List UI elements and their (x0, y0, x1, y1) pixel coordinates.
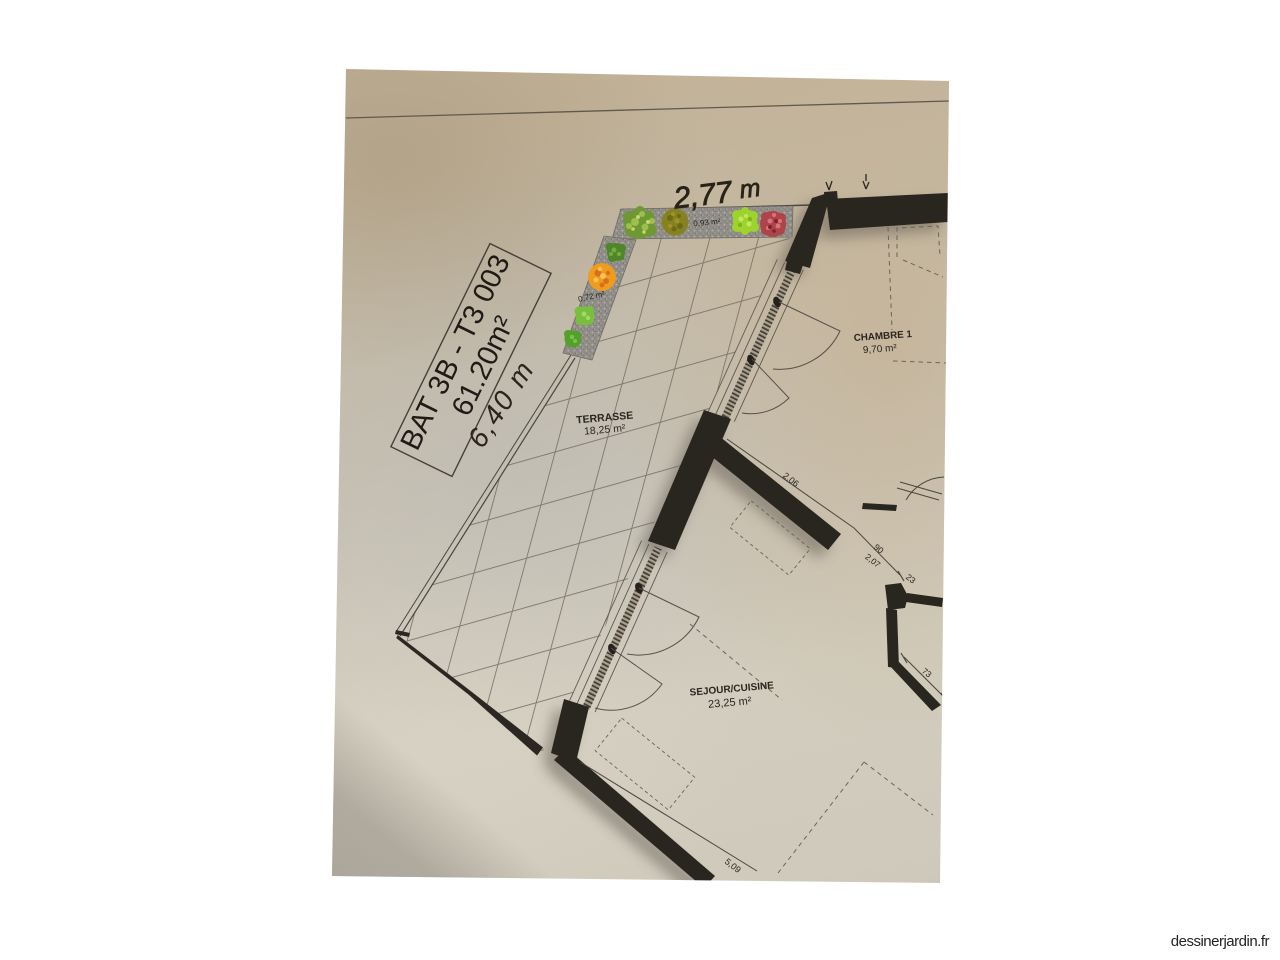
svg-text:m: m (738, 174, 762, 204)
svg-text:90: 90 (872, 542, 886, 556)
svg-text:23,25 m²: 23,25 m² (708, 695, 753, 711)
svg-text:CHAMBRE 1: CHAMBRE 1 (853, 329, 912, 344)
svg-text:9,70 m²: 9,70 m² (863, 343, 898, 356)
svg-text:5,09: 5,09 (723, 856, 743, 875)
svg-text:2,06: 2,06 (781, 470, 801, 489)
svg-text:73: 73 (920, 666, 934, 680)
svg-text:23: 23 (904, 572, 918, 586)
